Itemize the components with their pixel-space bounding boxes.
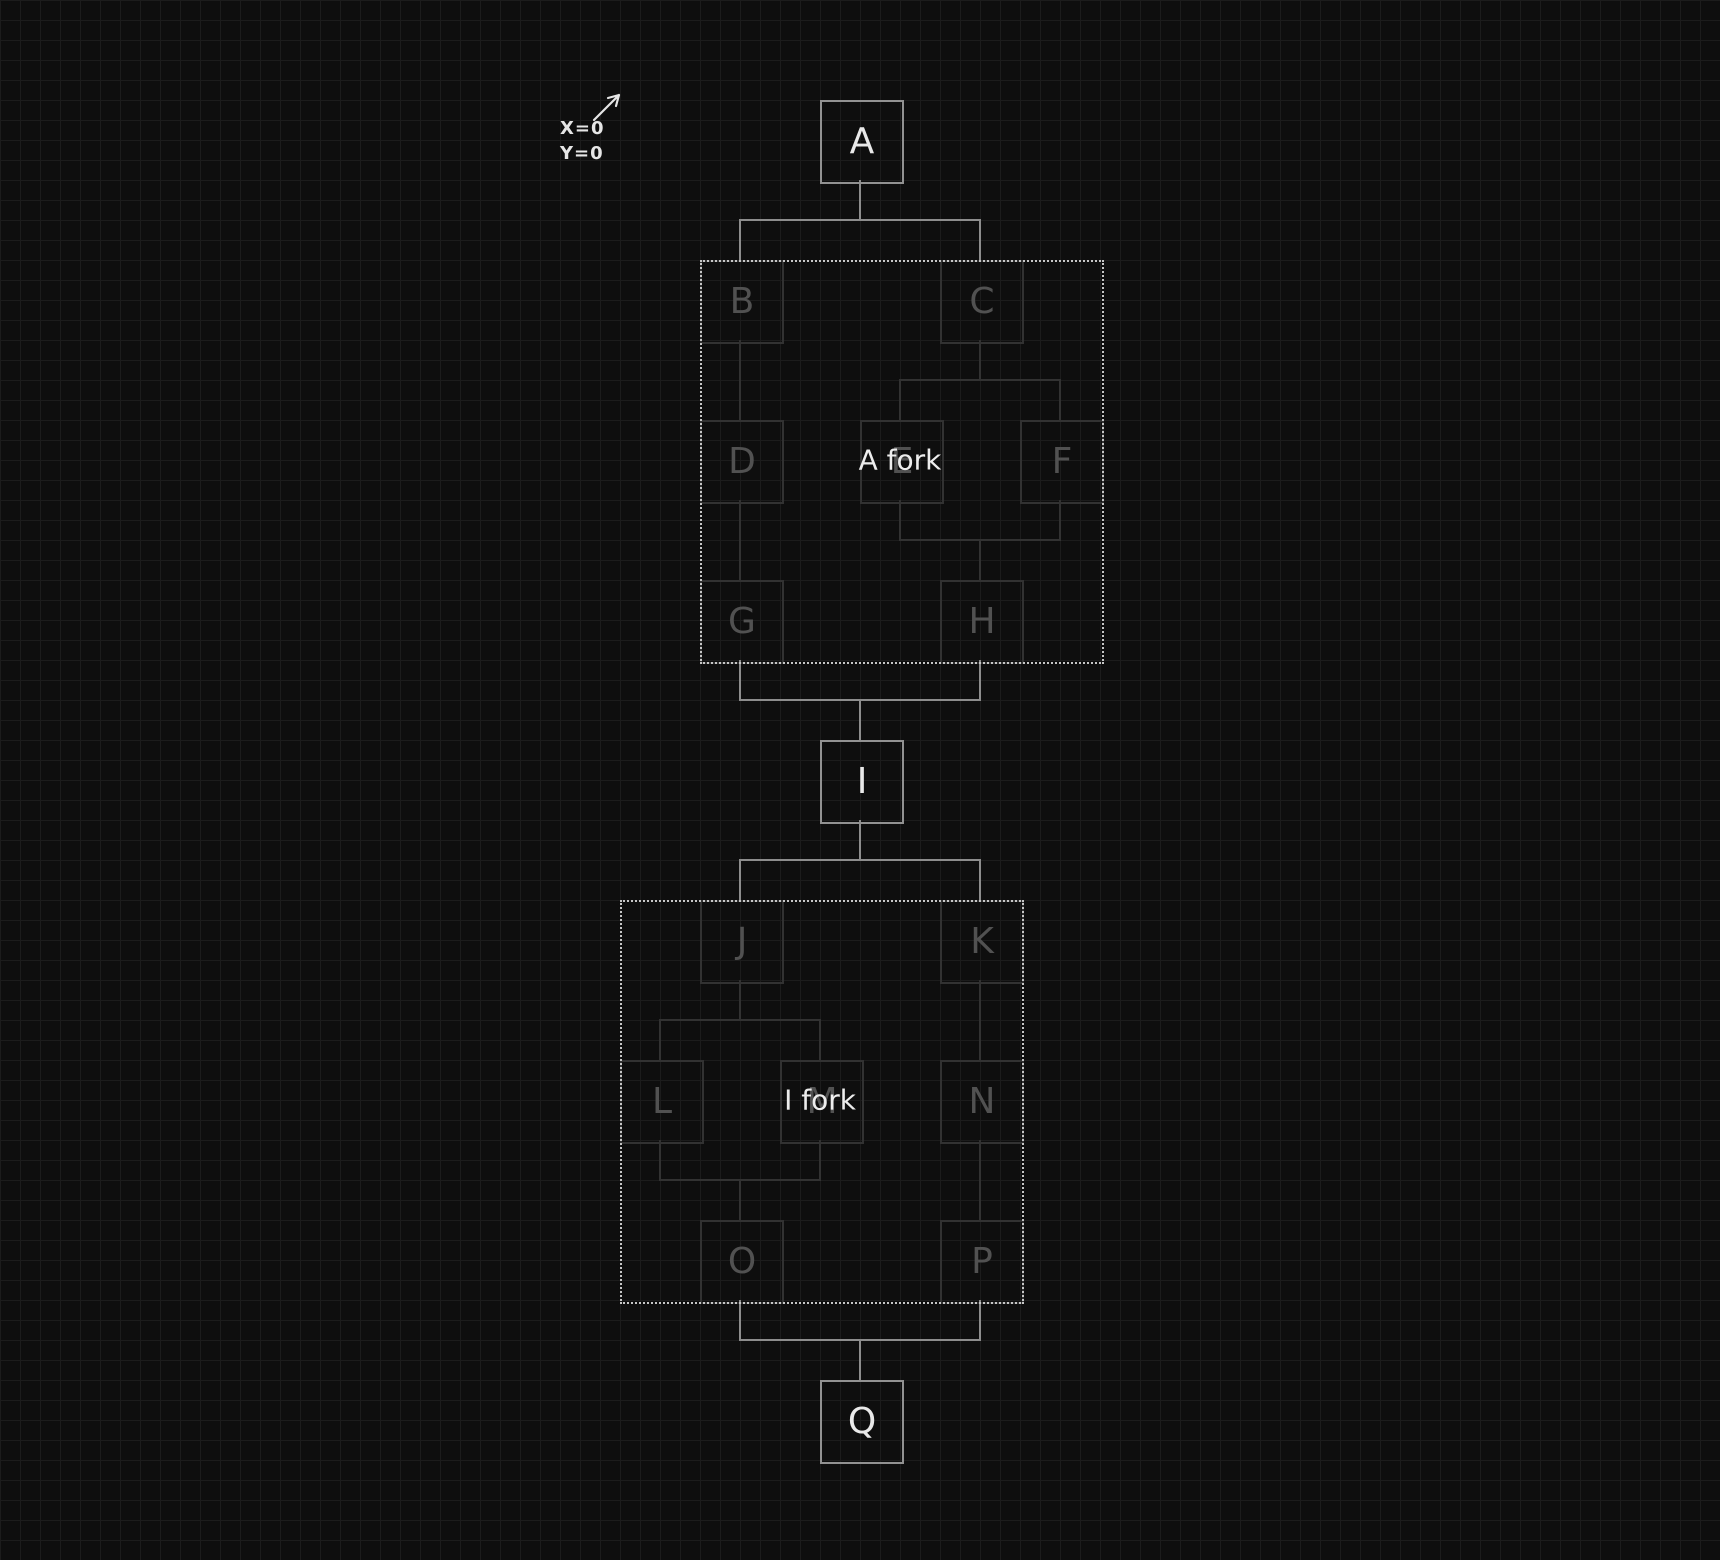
group-label: I fork [784,1084,856,1117]
group-label: A fork [859,444,942,477]
labels-layer: A forkI fork [0,0,1720,1560]
diagram-canvas[interactable]: ABCDEFGHIJKLMNOPQ A forkI fork X=0 Y=0 [0,0,1720,1560]
